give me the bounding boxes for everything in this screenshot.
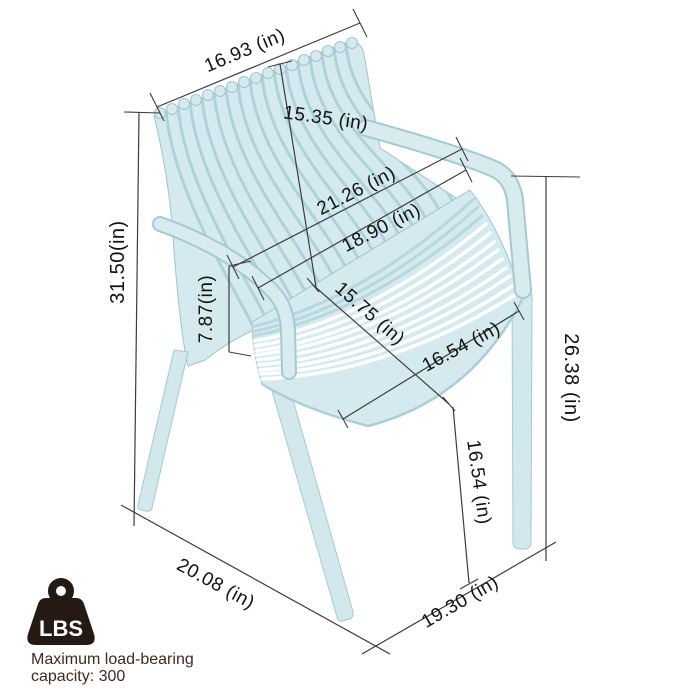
dimension-seat-front-floor-height: 16.54 (in) xyxy=(453,407,495,589)
diagram-canvas: 16.93 (in) 15.35 (in) 21.26 (in) 18.90 (… xyxy=(0,0,700,700)
dimension-label: 26.38 (in) xyxy=(560,333,582,423)
dimension-label: 7.87(in) xyxy=(196,275,217,343)
back-left-leg xyxy=(138,350,188,511)
dimension-label: 16.54 (in) xyxy=(462,439,495,526)
front-right-leg xyxy=(512,294,532,549)
dimension-label: 19.30 (in) xyxy=(418,572,502,633)
load-caption-line2: capacity: 300 xyxy=(31,668,125,685)
dimension-label: 31.50(in) xyxy=(107,220,129,303)
load-caption-line1: Maximum load-bearing xyxy=(31,651,194,668)
lbs-weight-icon: LBS xyxy=(27,582,94,645)
dimension-base-depth: 20.08 (in) xyxy=(121,505,390,654)
lbs-icon-label: LBS xyxy=(39,616,83,641)
load-capacity-info: LBS Maximum load-bearing capacity: 300 xyxy=(27,582,193,685)
dimension-base-width: 19.30 (in) xyxy=(362,542,556,654)
product-dimension-diagram: 16.93 (in) 15.35 (in) 21.26 (in) 18.90 (… xyxy=(0,0,700,700)
dimension-label: 20.08 (in) xyxy=(173,555,258,614)
